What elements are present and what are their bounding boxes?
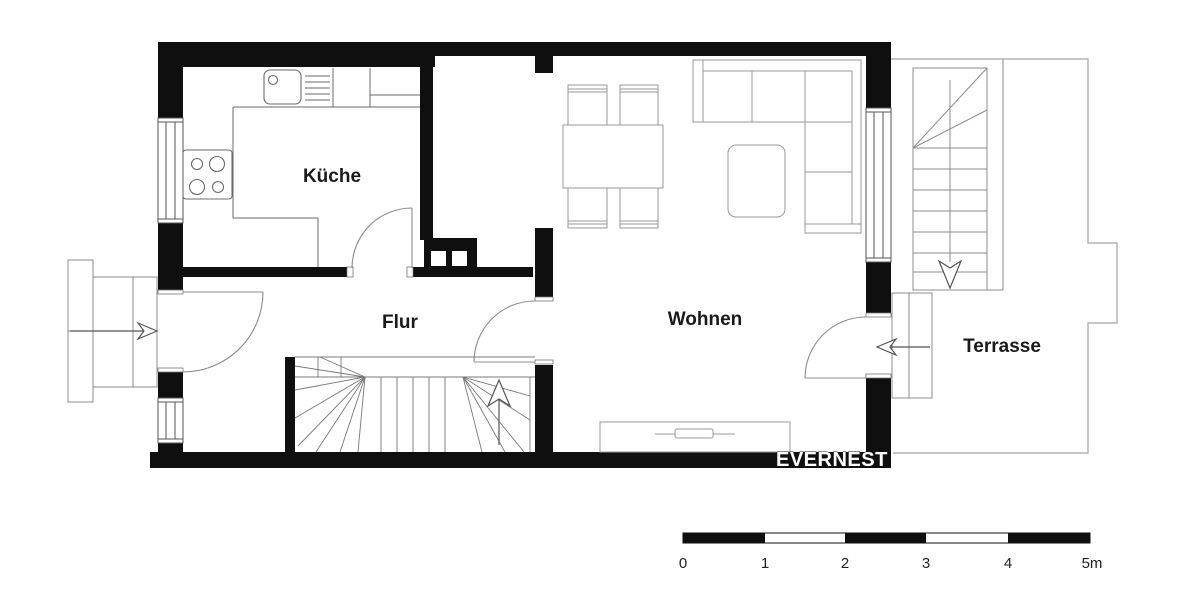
room-label-terrasse: Terrasse (963, 336, 1041, 357)
wall-living-divider-upper (535, 228, 553, 297)
scale-tick-5m: 5m (1082, 555, 1103, 572)
scale-tick-0: 0 (679, 555, 687, 572)
coffee-table (728, 145, 785, 217)
window-kitchen-left (158, 118, 183, 223)
wall-stub-top (535, 55, 553, 73)
wall-living-divider-lower (535, 365, 553, 452)
wall-top-living (435, 42, 891, 56)
wall-left-2 (158, 223, 183, 292)
terrace-stairs (913, 59, 1003, 290)
room-label-wohnen: Wohnen (668, 309, 743, 330)
scale-tick-3: 3 (922, 555, 930, 572)
watermark-text: EVERNEST (776, 449, 888, 471)
dining-chair (568, 188, 607, 228)
scale-tick-4: 4 (1004, 555, 1012, 572)
scale-bar: 0 1 2 3 4 5m (679, 533, 1103, 572)
tv (675, 429, 713, 438)
floorplan-drawing: Küche Flur Wohnen Terrasse EVERNEST 0 1 … (0, 0, 1200, 600)
dining-chair (620, 85, 658, 125)
stairs-down-arrow-icon (939, 261, 961, 288)
terrace-door (805, 317, 866, 378)
door-sills (158, 267, 891, 378)
wall-hall-north-right (413, 267, 533, 277)
wall-kitchen-divider (420, 67, 433, 240)
terrace-outline (891, 59, 1117, 453)
terrace-door-steps (892, 293, 932, 398)
entrance-arrow-icon (70, 323, 157, 339)
scale-tick-2: 2 (841, 555, 849, 572)
room-label-kueche: Küche (303, 166, 361, 187)
wall-top-kitchen (158, 42, 435, 67)
wall-right-1 (866, 42, 891, 108)
room-label-flur: Flur (382, 312, 418, 333)
scale-tick-1: 1 (761, 555, 769, 572)
kitchen-door (352, 208, 412, 268)
dining-chair (568, 85, 607, 125)
entrance-door (183, 292, 263, 372)
dining-table (563, 125, 663, 188)
kitchen-sink (264, 70, 330, 104)
stove (183, 150, 232, 199)
window-living-right (866, 108, 891, 262)
wall-left-1 (158, 42, 183, 118)
living-room-door (474, 301, 535, 362)
terrace-entry-arrow-icon (877, 339, 930, 355)
doors (183, 208, 866, 378)
dining-set (563, 85, 663, 228)
tv-sideboard (600, 422, 790, 452)
floorplan-page: Küche Flur Wohnen Terrasse EVERNEST 0 1 … (0, 0, 1200, 600)
wall-right-2 (866, 262, 891, 313)
wall-left-3 (158, 372, 183, 398)
window-hall-left (158, 398, 183, 443)
wall-right-3 (866, 378, 891, 452)
dining-chair (620, 188, 658, 228)
wall-hall-north-left (170, 267, 347, 277)
wall-stair (285, 357, 295, 452)
